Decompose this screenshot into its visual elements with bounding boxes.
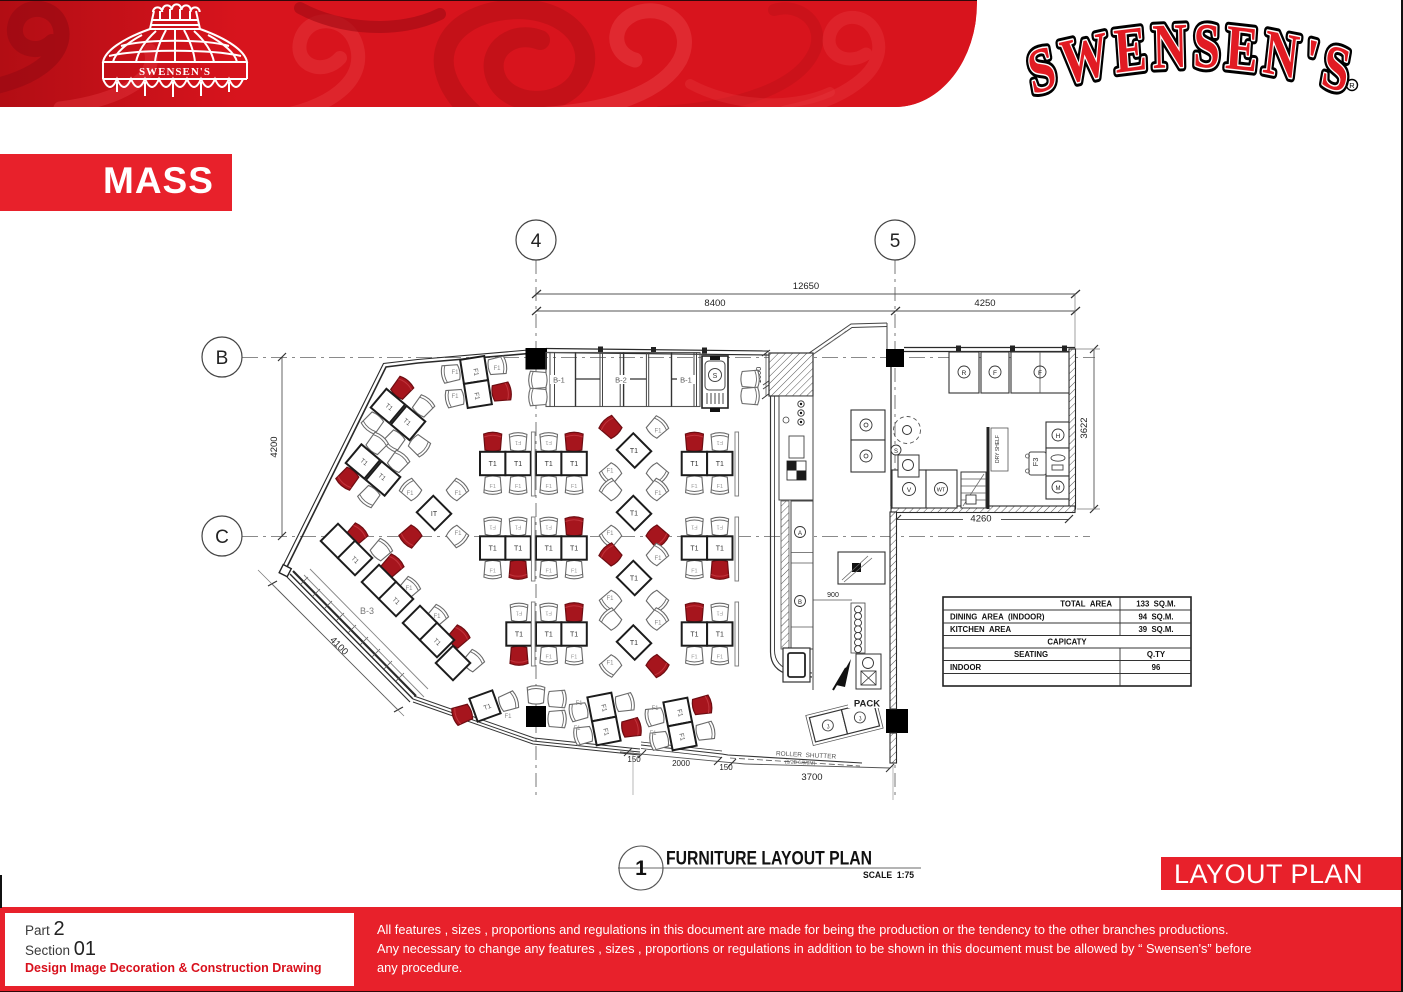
svg-text:F1: F1 bbox=[654, 429, 662, 435]
svg-text:F1: F1 bbox=[571, 484, 577, 490]
svg-text:F1: F1 bbox=[606, 531, 614, 537]
svg-text:T1: T1 bbox=[690, 546, 698, 553]
svg-text:150: 150 bbox=[719, 763, 733, 772]
svg-text:PACK: PACK bbox=[854, 699, 880, 710]
svg-text:TOTAL AREA: TOTAL AREA bbox=[1060, 600, 1112, 609]
svg-text:4200: 4200 bbox=[269, 436, 280, 457]
svg-text:C: C bbox=[215, 527, 229, 548]
svg-text:F1: F1 bbox=[606, 596, 614, 602]
svg-text:T1: T1 bbox=[716, 461, 724, 468]
svg-text:F1: F1 bbox=[545, 610, 551, 616]
svg-text:F1: F1 bbox=[691, 524, 697, 530]
svg-text:V: V bbox=[907, 487, 912, 494]
svg-text:T1: T1 bbox=[630, 511, 638, 518]
svg-text:S: S bbox=[894, 449, 898, 455]
svg-text:F1: F1 bbox=[545, 655, 551, 661]
svg-text:T1: T1 bbox=[630, 576, 638, 583]
svg-text:4: 4 bbox=[531, 231, 542, 252]
svg-text:F1: F1 bbox=[691, 569, 697, 575]
svg-text:F1: F1 bbox=[691, 484, 697, 490]
svg-text:F1: F1 bbox=[406, 491, 414, 497]
svg-text:39 SQ.M.: 39 SQ.M. bbox=[1138, 625, 1173, 634]
svg-text:F1: F1 bbox=[471, 368, 479, 377]
svg-text:F1: F1 bbox=[515, 439, 521, 445]
svg-text:T1: T1 bbox=[545, 632, 553, 639]
svg-text:F1: F1 bbox=[717, 610, 723, 616]
svg-text:F1: F1 bbox=[717, 484, 723, 490]
svg-text:CAPICATY: CAPICATY bbox=[1047, 638, 1087, 647]
svg-text:T1: T1 bbox=[716, 632, 724, 639]
svg-text:F1: F1 bbox=[454, 531, 462, 537]
svg-text:12650: 12650 bbox=[793, 281, 819, 292]
svg-text:M: M bbox=[1056, 486, 1061, 492]
svg-text:F1: F1 bbox=[717, 439, 723, 445]
svg-text:F1: F1 bbox=[606, 469, 614, 475]
svg-text:T1: T1 bbox=[690, 632, 698, 639]
svg-text:133 SQ.M.: 133 SQ.M. bbox=[1136, 600, 1175, 609]
svg-text:F1: F1 bbox=[571, 569, 577, 575]
svg-text:F: F bbox=[993, 370, 997, 377]
svg-text:T1: T1 bbox=[630, 640, 638, 647]
svg-text:3700: 3700 bbox=[801, 772, 822, 783]
svg-text:T1: T1 bbox=[489, 461, 497, 468]
svg-text:T1: T1 bbox=[570, 632, 578, 639]
svg-text:B-2: B-2 bbox=[615, 376, 627, 385]
svg-text:900: 900 bbox=[827, 592, 839, 599]
svg-text:F1: F1 bbox=[515, 484, 521, 490]
svg-text:F1: F1 bbox=[573, 726, 581, 732]
svg-text:F1: F1 bbox=[489, 569, 495, 575]
svg-text:3622: 3622 bbox=[1079, 417, 1090, 438]
svg-text:2000: 2000 bbox=[672, 759, 690, 768]
svg-text:F1: F1 bbox=[516, 610, 522, 616]
svg-text:F1: F1 bbox=[717, 655, 723, 661]
svg-text:IT: IT bbox=[431, 511, 438, 518]
svg-text:F1: F1 bbox=[575, 701, 583, 707]
svg-text:WT: WT bbox=[937, 488, 946, 494]
svg-text:F1: F1 bbox=[691, 655, 697, 661]
svg-text:F1: F1 bbox=[515, 524, 521, 530]
svg-text:INDOOR: INDOOR bbox=[950, 663, 982, 672]
svg-text:DRY SHELF: DRY SHELF bbox=[995, 435, 1001, 463]
svg-text:5: 5 bbox=[890, 231, 901, 252]
svg-text:T1: T1 bbox=[690, 461, 698, 468]
svg-text:F1: F1 bbox=[451, 394, 459, 400]
svg-text:T1: T1 bbox=[570, 546, 578, 553]
svg-text:4260: 4260 bbox=[970, 514, 991, 525]
svg-text:DINING AREA (INDOOR): DINING AREA (INDOOR) bbox=[950, 613, 1045, 622]
svg-text:Q.TY: Q.TY bbox=[1147, 650, 1166, 659]
svg-text:F1: F1 bbox=[606, 661, 614, 667]
svg-text:T1: T1 bbox=[545, 546, 553, 553]
svg-text:T1: T1 bbox=[515, 632, 523, 639]
svg-text:F1: F1 bbox=[451, 370, 459, 376]
svg-text:A: A bbox=[798, 531, 802, 537]
svg-text:R: R bbox=[962, 370, 967, 377]
svg-text:SCALE 1:75: SCALE 1:75 bbox=[863, 870, 915, 881]
svg-text:T1: T1 bbox=[716, 546, 724, 553]
svg-text:B-1: B-1 bbox=[553, 376, 565, 385]
svg-text:F1: F1 bbox=[571, 655, 577, 661]
svg-text:F1: F1 bbox=[493, 366, 501, 372]
svg-text:FURNITURE LAYOUT PLAN: FURNITURE LAYOUT PLAN bbox=[666, 848, 872, 870]
svg-text:F3: F3 bbox=[1031, 458, 1040, 467]
svg-text:F1: F1 bbox=[545, 439, 551, 445]
svg-text:KITCHEN AREA: KITCHEN AREA bbox=[950, 625, 1011, 634]
svg-text:B: B bbox=[798, 600, 802, 606]
svg-text:B-3: B-3 bbox=[360, 606, 374, 616]
svg-text:T1: T1 bbox=[514, 461, 522, 468]
svg-text:H: H bbox=[1056, 433, 1061, 440]
svg-text:F1: F1 bbox=[504, 714, 512, 720]
svg-text:F: F bbox=[1038, 370, 1042, 377]
svg-text:T1: T1 bbox=[630, 448, 638, 455]
svg-text:F1: F1 bbox=[472, 392, 480, 401]
svg-text:150: 150 bbox=[627, 755, 641, 764]
svg-text:F1: F1 bbox=[654, 556, 662, 562]
svg-text:SEATING: SEATING bbox=[1014, 650, 1048, 659]
svg-text:F1: F1 bbox=[489, 484, 495, 490]
svg-text:T1: T1 bbox=[570, 461, 578, 468]
svg-text:F1: F1 bbox=[405, 586, 413, 592]
svg-text:4250: 4250 bbox=[974, 298, 995, 309]
svg-text:F1: F1 bbox=[489, 524, 495, 530]
svg-text:F1: F1 bbox=[545, 524, 551, 530]
svg-text:S: S bbox=[713, 373, 718, 380]
svg-text:F1: F1 bbox=[651, 706, 659, 712]
svg-text:T1: T1 bbox=[514, 546, 522, 553]
svg-text:F1: F1 bbox=[545, 569, 551, 575]
svg-text:96: 96 bbox=[1152, 663, 1161, 672]
svg-text:F1: F1 bbox=[433, 614, 441, 620]
svg-text:1: 1 bbox=[635, 857, 647, 880]
svg-text:F1: F1 bbox=[454, 491, 462, 497]
svg-text:B: B bbox=[216, 348, 229, 369]
svg-text:F1: F1 bbox=[649, 731, 657, 737]
svg-text:F1: F1 bbox=[545, 484, 551, 490]
svg-text:F1: F1 bbox=[654, 621, 662, 627]
svg-text:F1: F1 bbox=[717, 524, 723, 530]
svg-text:F1: F1 bbox=[654, 491, 662, 497]
svg-text:T1: T1 bbox=[545, 461, 553, 468]
svg-text:94 SQ.M.: 94 SQ.M. bbox=[1138, 613, 1173, 622]
svg-text:8400: 8400 bbox=[704, 298, 725, 309]
svg-text:B-1: B-1 bbox=[680, 376, 692, 385]
svg-text:T1: T1 bbox=[489, 546, 497, 553]
